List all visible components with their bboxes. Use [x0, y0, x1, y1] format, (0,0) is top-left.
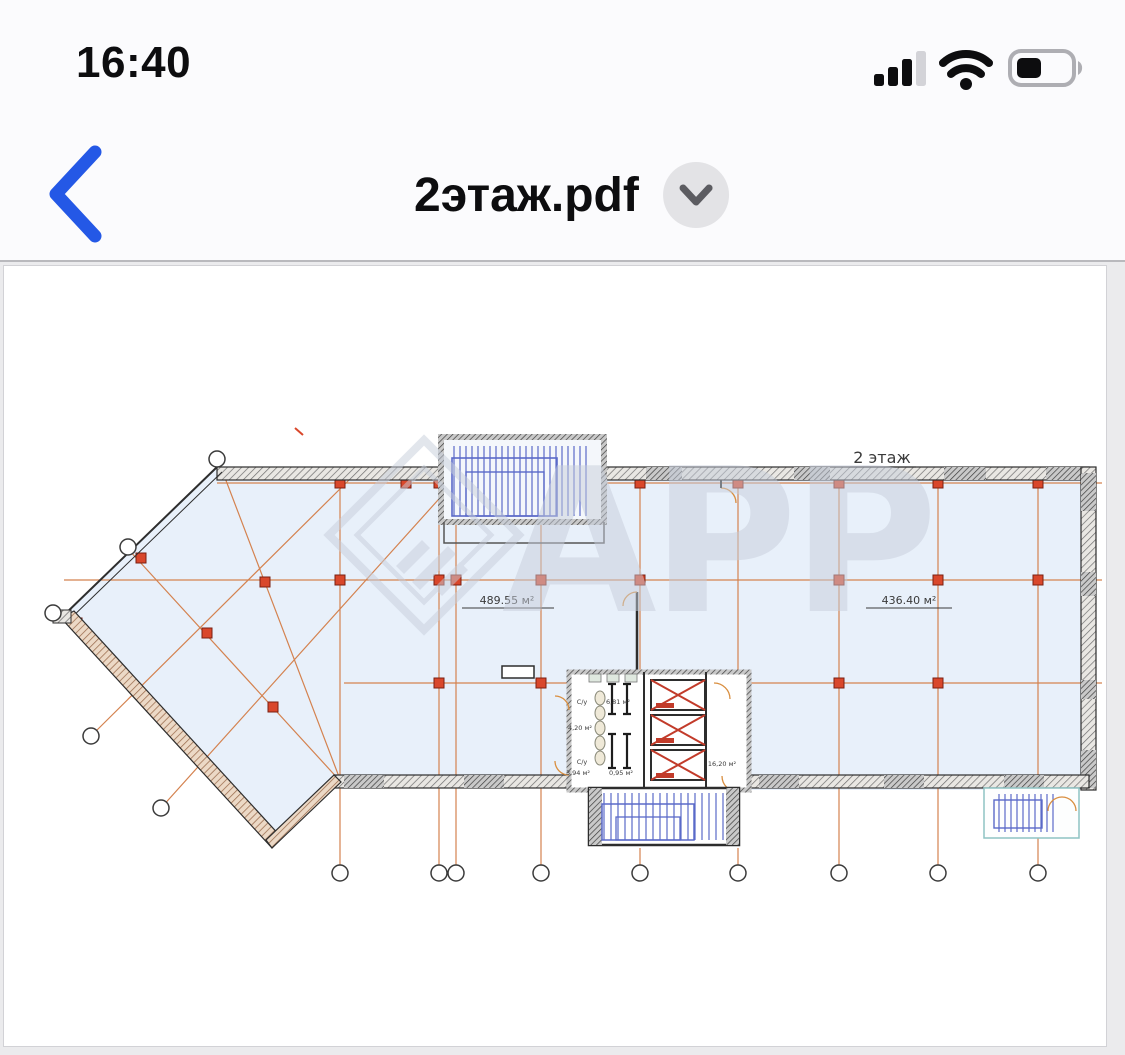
status-icons	[872, 46, 1087, 97]
pdf-page[interactable]: 2 этаж 489.55 м² 436.40 м² С/у 6,81 м² 4…	[3, 265, 1107, 1047]
bottom-right-stair	[984, 788, 1079, 838]
area-394-label: 3,94 м²	[566, 769, 590, 777]
wc-top-label: С/у	[577, 698, 588, 706]
chevron-left-icon	[40, 144, 110, 244]
document-title: 2этаж.pdf	[414, 168, 639, 223]
area-1620-label: 16,20 м²	[708, 760, 737, 768]
area-681-label: 6,81 м²	[606, 698, 630, 706]
pdf-viewer-screen: 16:40	[0, 0, 1125, 1055]
nav-bar: 2этаж.pdf	[0, 130, 1125, 262]
battery-icon	[1010, 51, 1082, 85]
pdf-scroll-area[interactable]: 2 этаж 489.55 м² 436.40 м² С/у 6,81 м² 4…	[0, 262, 1125, 1055]
elevators	[651, 680, 705, 780]
bottom-stair	[589, 788, 739, 845]
back-button[interactable]	[30, 144, 120, 244]
wc-bottom-label: С/у	[577, 758, 588, 766]
wifi-icon	[943, 54, 989, 90]
chevron-down-icon	[679, 183, 713, 207]
status-bar: 16:40	[0, 0, 1125, 130]
red-tick-mark	[295, 428, 303, 435]
floor-plan-drawing: 2 этаж 489.55 м² 436.40 м² С/у 6,81 м² 4…	[4, 266, 1107, 1047]
watermark-text: АРР	[502, 426, 932, 659]
area-420-label: 4,20 м²	[568, 724, 592, 732]
clock: 16:40	[76, 38, 191, 88]
cellular-signal-icon	[874, 51, 926, 86]
title-menu-button[interactable]	[663, 162, 729, 228]
area-095-label: 0,95 м²	[609, 769, 633, 777]
